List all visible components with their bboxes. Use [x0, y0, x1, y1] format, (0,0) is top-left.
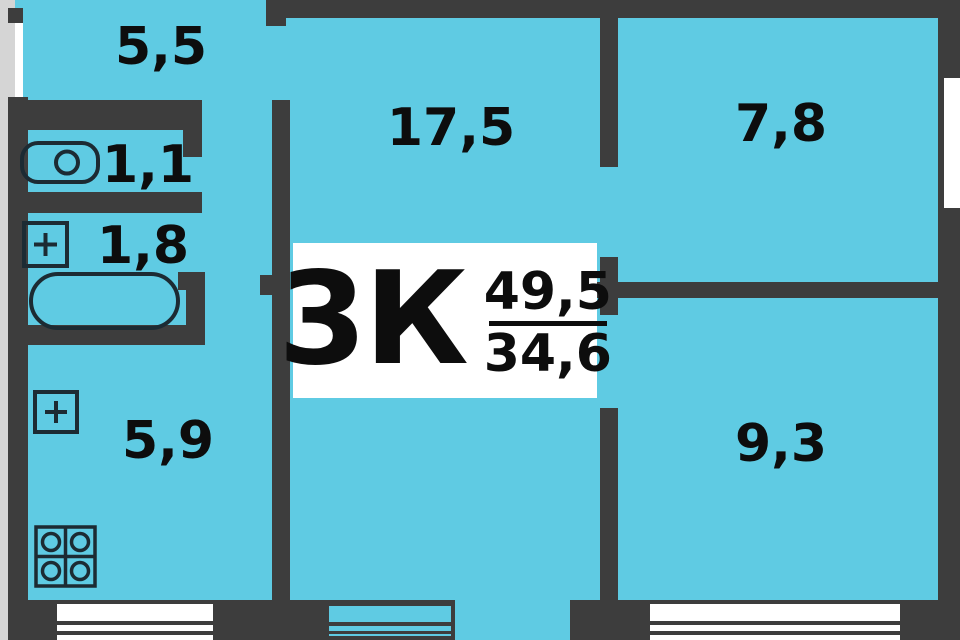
- area-fraction: 49,5 34,6: [484, 266, 612, 380]
- jamb-corridor: [260, 275, 272, 295]
- bathroom-area-label: 1,8: [97, 220, 189, 272]
- wall-bedroom-left-lower: [600, 408, 618, 600]
- wall-top: [266, 0, 960, 18]
- living-room-area-label: 17,5: [387, 102, 515, 154]
- window-kitchen: [57, 604, 213, 621]
- hallway-area-label: 5,5: [115, 21, 207, 73]
- window-bedroom: [650, 604, 900, 621]
- toilet-area-label: 1,1: [102, 139, 194, 191]
- balcony-door-window: [325, 602, 455, 640]
- total-area-value: 49,5: [484, 266, 612, 318]
- wall-left-top-stub: [8, 8, 23, 23]
- toilet-icon: [20, 141, 100, 184]
- window-right: [944, 78, 960, 208]
- bathtub-icon: [29, 272, 180, 330]
- stove-icon: [34, 525, 97, 588]
- balcony-door-mullion: [329, 631, 451, 634]
- floor-plan: 5,5 1,1 1,8 5,9 17,5 7,8 9,3 3К 49,5 34,…: [0, 0, 960, 640]
- kitchen-area-label: 5,9: [122, 415, 214, 467]
- wall-rooms-divider-upper: [600, 18, 618, 167]
- window-kitchen: [57, 625, 213, 631]
- balcony-opening: [455, 600, 570, 640]
- wall-toilet-bathroom: [8, 192, 202, 213]
- apartment-type-label: 3К: [278, 264, 466, 377]
- wall-hallway-toilet: [8, 100, 202, 130]
- window-kitchen: [57, 635, 213, 640]
- sink-icon: [22, 221, 69, 268]
- window-bedroom: [650, 625, 900, 631]
- apartment-legend: 3К 49,5 34,6: [293, 243, 597, 398]
- kitchen-sink-icon: [33, 390, 79, 434]
- wall-top-door-stub: [266, 0, 286, 26]
- balcony-door-mullion: [329, 622, 451, 626]
- entry-door-opening: [15, 23, 23, 97]
- bedroom-area-label: 9,3: [735, 418, 827, 470]
- living-area-value: 34,6: [484, 328, 612, 380]
- bedroom-small-area-label: 7,8: [735, 98, 827, 150]
- wall-bedrooms-divider: [592, 282, 938, 298]
- window-bedroom: [650, 635, 900, 640]
